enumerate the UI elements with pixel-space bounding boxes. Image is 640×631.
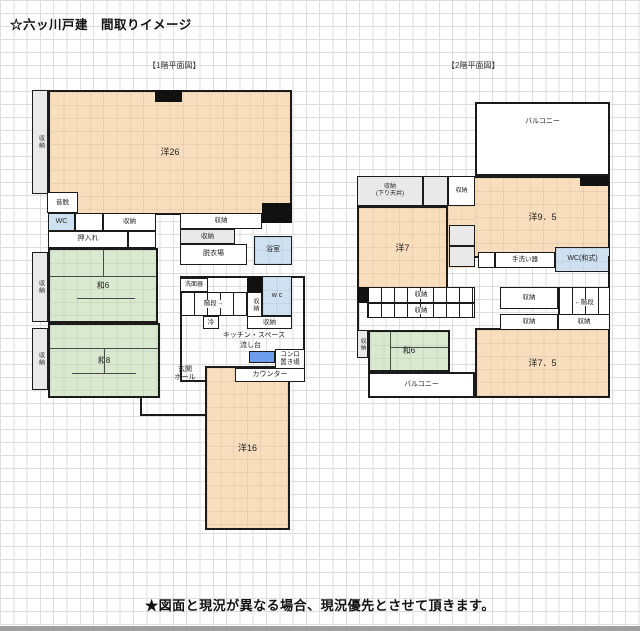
gray-cell-2f-c — [449, 246, 475, 267]
page-title: ☆六ッ川戸建 間取りイメージ — [10, 14, 192, 33]
balcony-top-2f: バルコニー — [475, 102, 610, 176]
bath-cell: 浴室 — [254, 236, 292, 265]
tearaiki-cell: 手洗い器 — [495, 252, 555, 268]
empty-cell-1f-a — [75, 213, 103, 231]
storage-cell-2f-b: 収納 — [500, 287, 558, 309]
room-wa6-1f: 和6 — [48, 248, 158, 323]
room-yo75: 洋7．5 — [475, 328, 610, 398]
counter-cell: カウンター — [235, 368, 305, 382]
storage-row-2f-b: 収納 — [367, 303, 475, 318]
tatami-line — [390, 332, 391, 370]
room-wa6-2f: 和6 — [368, 330, 450, 372]
empty-cell-2f-a — [478, 252, 495, 268]
room-yo7: 洋7 — [357, 206, 448, 290]
balcony-bottom-2f: バルコニー — [368, 372, 475, 398]
otodatsu-cell: 音脱 — [47, 192, 78, 213]
sink-cell — [249, 351, 275, 363]
sink-label: 流し台 — [240, 342, 261, 350]
room-yo26: 洋26 — [48, 90, 292, 215]
genkan-step-wall — [140, 414, 207, 416]
genkan-hall-label: 玄関 ホール — [168, 366, 202, 382]
storage-row-2f-a: 収納 — [367, 287, 475, 303]
fridge-cell: 冷 — [203, 316, 219, 329]
gray-cell-2f-a — [423, 176, 448, 206]
tatami-line — [72, 373, 137, 374]
empty-cell-1f-b — [128, 231, 156, 248]
pillar-block-1f-top — [155, 90, 182, 102]
gray-cell-2f-b — [449, 225, 475, 246]
storage-cell-1f-e: 収納 — [247, 316, 292, 329]
bottom-edge-bar — [0, 626, 640, 631]
pillar-block-1f-right — [262, 203, 292, 223]
wc-cell-1f: WC — [48, 213, 75, 231]
footer-note: ★図面と現況が異なる場合、現況優先とさせて頂きます。 — [145, 595, 495, 614]
storage-cell-2f-a: 収納 — [448, 176, 475, 206]
floorplan-sheet: ☆六ッ川戸建 間取りイメージ 【1階平面図】 【2階平面図】 洋26 収納 音脱… — [0, 0, 640, 631]
storage-strip-1f-a: 収納 — [32, 90, 48, 194]
storage-strip-2f: 収納 — [357, 330, 368, 358]
storage-lowered-ceiling-cell: 収納 (下り天井) — [357, 176, 423, 206]
tatami-line — [104, 348, 105, 372]
datsuiba-area: 脱衣場 — [180, 244, 247, 265]
stairs-1f: 階段→ — [180, 292, 247, 316]
kitchen-space-label: キッチン・スペース — [206, 332, 302, 340]
oshiire-cell: 押入れ — [48, 231, 128, 248]
wc-cell-1f-small: w c — [262, 276, 292, 316]
storage-strip-1f-c: 収納 — [32, 328, 48, 390]
pillar-block-2f-top — [580, 176, 609, 186]
pillar-block-1f-wc — [247, 276, 262, 292]
storage-cell-1f-a: 収納 — [103, 213, 156, 231]
room-wa8-1f: 和8 — [48, 323, 160, 398]
wc-washiki-cell: WC(和式) — [555, 247, 610, 272]
pillar-block-2f-left — [357, 287, 369, 303]
floor2-caption: 【2階平面図】 — [447, 60, 499, 71]
tatami-line — [50, 276, 156, 277]
storage-cell-2f-c: 収納 — [500, 314, 558, 330]
tatami-line — [103, 250, 104, 276]
stove-cell: コンロ 置き場 — [275, 349, 305, 369]
storage-cell-1f-c: 収納 — [180, 229, 235, 244]
room-yo16: 洋16 — [205, 366, 290, 530]
tatami-line — [390, 347, 449, 348]
storage-strip-1f-b: 収納 — [32, 252, 48, 322]
storage-cell-2f-d: 収納 — [558, 314, 610, 330]
senmenki-cell: 洗面器 — [180, 278, 208, 292]
storage-cell-1f-b: 収納 — [180, 213, 262, 229]
floor1-caption: 【1階平面図】 — [148, 60, 200, 71]
storage-cell-1f-d: 収納 — [247, 292, 262, 318]
tatami-line — [77, 298, 135, 299]
